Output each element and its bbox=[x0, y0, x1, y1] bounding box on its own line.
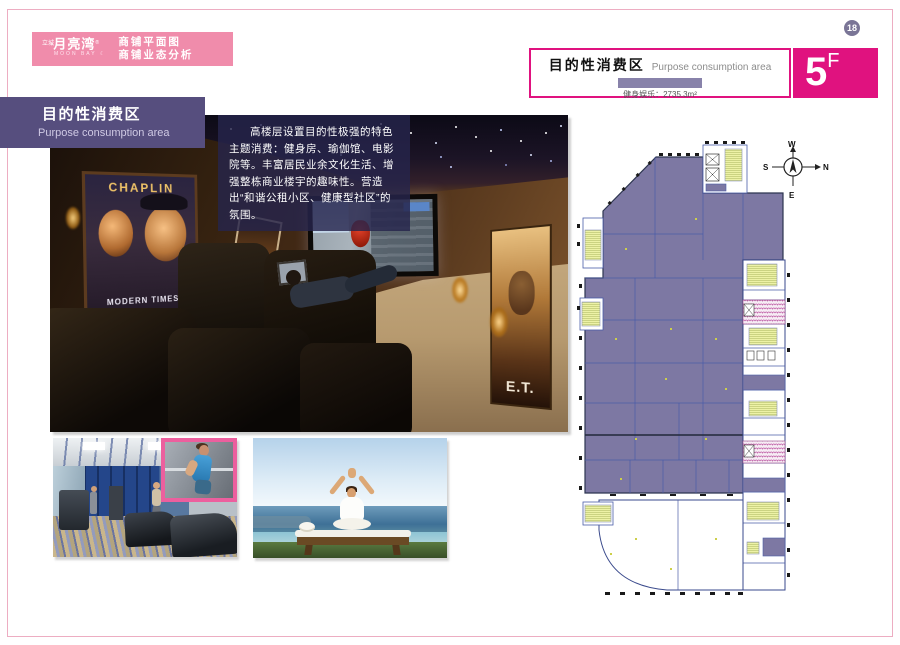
bowler-hat bbox=[140, 193, 188, 210]
legend-area-text: 健身娱乐：2735.3m² bbox=[531, 89, 789, 100]
wall-sconce bbox=[490, 307, 508, 337]
runner-shorts bbox=[194, 479, 211, 494]
person-head bbox=[153, 482, 160, 489]
brand-logo: 立城·月亮湾® MOON BAY ☾ bbox=[42, 38, 106, 60]
header-title-cn: 目的性消费区 bbox=[549, 57, 645, 73]
treadmill bbox=[170, 512, 237, 557]
gym-machine bbox=[109, 486, 123, 520]
compass-west-label: W bbox=[788, 140, 796, 149]
section-label: 目的性消费区 Purpose consumption area bbox=[0, 97, 205, 148]
person-body bbox=[90, 492, 97, 514]
brand-subtitle: MOON BAY ☾ bbox=[54, 49, 106, 60]
poster-et-title: E.T. bbox=[492, 377, 550, 399]
stairwell-left bbox=[580, 218, 603, 330]
floor-plan: W S N E bbox=[575, 138, 885, 625]
bench-leg bbox=[392, 545, 400, 555]
compass-east-label: E bbox=[789, 191, 795, 200]
plan-right-wing bbox=[743, 260, 785, 590]
brochure-page: 立城·月亮湾® MOON BAY ☾ 商铺平面图 商铺业态分析 18 目的性消费… bbox=[0, 0, 900, 645]
ceiling-light bbox=[83, 442, 105, 450]
banner-title: 商铺平面图 商铺业态分析 bbox=[118, 36, 193, 62]
header-title-en: Purpose consumption area bbox=[652, 62, 772, 73]
wooden-bench bbox=[297, 537, 409, 545]
brand-banner: 立城·月亮湾® MOON BAY ☾ 商铺平面图 商铺业态分析 bbox=[32, 32, 233, 66]
legend-color-swatch bbox=[618, 78, 702, 88]
description-text: 高楼层设置目的性极强的特色主题消费：健身房、瑜伽馆、电影院等。丰富居民业余文化生… bbox=[229, 124, 399, 223]
stairwell-top-right bbox=[703, 145, 747, 193]
section-header-bar: 目的性消费区Purpose consumption area 健身娱乐：2735… bbox=[529, 48, 791, 98]
wall-sconce bbox=[452, 277, 468, 303]
poster-face bbox=[98, 210, 133, 257]
plan-bottom-section bbox=[583, 500, 743, 590]
registered-mark: ® bbox=[95, 40, 99, 46]
gym-photo bbox=[53, 438, 237, 557]
page-number-badge: 18 bbox=[844, 20, 860, 36]
gym-machine bbox=[59, 490, 89, 530]
yoga-hands bbox=[348, 468, 356, 478]
compass-rose: W S N E bbox=[763, 140, 829, 200]
wall-sconce bbox=[66, 207, 80, 229]
bench-leg bbox=[304, 545, 312, 555]
floor-number: 5 bbox=[805, 50, 827, 94]
recliner-seat bbox=[300, 343, 412, 432]
banner-line-2: 商铺业态分析 bbox=[118, 49, 193, 62]
header-title-row: 目的性消费区Purpose consumption area bbox=[531, 55, 789, 75]
poster-chaplin-title: CHAPLIN bbox=[85, 179, 195, 196]
section-title-cn: 目的性消费区 bbox=[42, 103, 205, 124]
floor-badge: 5F bbox=[793, 48, 878, 98]
banner-line-1: 商铺平面图 bbox=[118, 36, 193, 49]
runner-inset-photo bbox=[161, 438, 237, 502]
yoga-photo bbox=[253, 438, 447, 558]
floor-suffix: F bbox=[827, 50, 839, 72]
bench-cushion bbox=[295, 530, 411, 537]
et-figure bbox=[509, 270, 535, 315]
gym-person bbox=[89, 486, 99, 516]
brand-prefix: 立城 bbox=[42, 41, 50, 47]
recliner-seat bbox=[168, 328, 310, 432]
section-title-en: Purpose consumption area bbox=[38, 127, 205, 139]
home-theater-photo: CHAPLIN MODERN TIMES GREASE E.T. bbox=[50, 115, 568, 432]
person-body bbox=[152, 489, 161, 506]
compass-south-label: S bbox=[763, 163, 769, 172]
rolled-towel bbox=[299, 522, 315, 532]
description-overlay: 高楼层设置目的性极强的特色主题消费：健身房、瑜伽馆、电影院等。丰富居民业余文化生… bbox=[218, 115, 410, 231]
moon-icon: ☾ bbox=[100, 51, 106, 57]
compass-north-label: N bbox=[823, 163, 829, 172]
yoga-legs bbox=[333, 518, 371, 530]
